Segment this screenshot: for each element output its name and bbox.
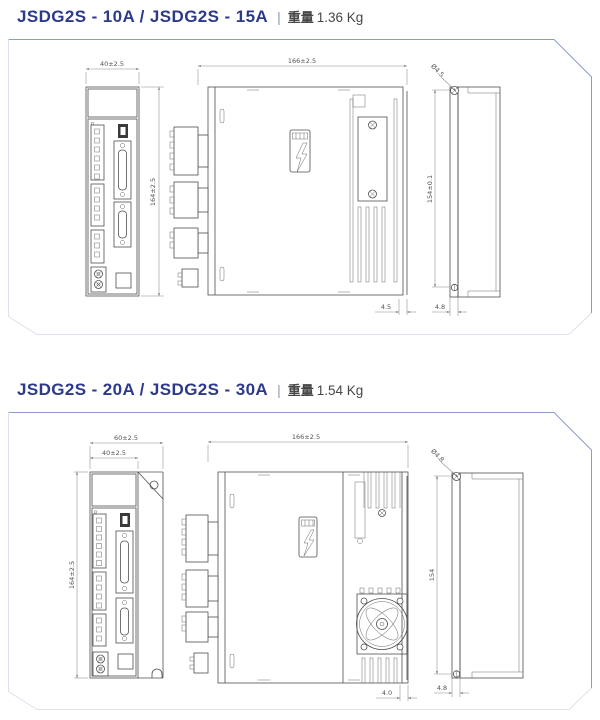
dim-side-bottom-gap: 4.0 — [382, 689, 392, 697]
section2-drawing-panel: 60±2.5 40±2.5 164±2.5 — [8, 412, 592, 710]
weight-label: 重量 — [288, 380, 314, 399]
front-view-drawing: 40±2.5 — [86, 60, 164, 296]
panel-border-light — [9, 40, 592, 335]
model-title: JSDG2S - 20A / JSDG2S - 30A — [17, 380, 268, 400]
datasheet-page: JSDG2S - 10A / JSDG2S - 15A | 重量 1.36 Kg… — [0, 0, 600, 720]
side-view-drawing: 166±2.5 — [182, 433, 417, 701]
model-title: JSDG2S - 10A / JSDG2S - 15A — [17, 7, 268, 27]
separator: | — [277, 9, 281, 25]
mount-view-drawing: 154±0.1 Ø4.5 4.8 — [426, 62, 500, 316]
dim-mount-hole: Ø4.8 — [429, 447, 446, 464]
dim-front-width: 40±2.5 — [102, 449, 126, 457]
weight-value: 1.36 Kg — [317, 10, 364, 25]
section2-drawings: 60±2.5 40±2.5 164±2.5 — [8, 412, 592, 710]
dim-side-width: 166±2.5 — [292, 433, 320, 441]
dim-mount-hole: Ø4.5 — [429, 62, 446, 79]
dim-side-width: 166±2.5 — [288, 57, 316, 65]
dim-mount-tab: 4.8 — [435, 303, 445, 311]
high-voltage-warning-icon — [290, 130, 310, 172]
separator: | — [277, 382, 281, 398]
dim-side-bottom-gap: 4.5 — [381, 303, 391, 311]
dim-front-width-outer: 60±2.5 — [114, 434, 138, 442]
section1-header: JSDG2S - 10A / JSDG2S - 15A | 重量 1.36 Kg — [17, 7, 363, 27]
dim-mount-tab: 4.8 — [437, 684, 447, 692]
dim-front-height: 164±2.5 — [68, 561, 76, 589]
section1-drawing-panel: 40±2.5 — [8, 39, 592, 335]
panel-border — [9, 40, 592, 314]
dim-mount-pitch: 154±0.1 — [426, 175, 434, 203]
dim-front-width: 40±2.5 — [100, 60, 124, 68]
power-connector — [93, 652, 108, 676]
high-voltage-warning-icon — [299, 517, 317, 557]
side-view-drawing: 166±2.5 — [170, 57, 416, 315]
weight-label: 重量 — [288, 7, 314, 26]
mount-view-drawing: 154 Ø4.8 4.8 — [428, 447, 523, 697]
panel-border — [9, 413, 592, 689]
cooling-fan — [357, 594, 408, 654]
panel-border-light — [9, 413, 592, 710]
front-view-drawing: 60±2.5 40±2.5 164±2.5 — [68, 434, 163, 678]
section2-header: JSDG2S - 20A / JSDG2S - 30A | 重量 1.54 Kg — [17, 380, 363, 400]
section1-drawings: 40±2.5 — [8, 39, 592, 335]
weight-value: 1.54 Kg — [317, 383, 364, 398]
dim-mount-pitch: 154 — [428, 569, 436, 581]
dim-front-height: 164±2.5 — [149, 178, 157, 206]
